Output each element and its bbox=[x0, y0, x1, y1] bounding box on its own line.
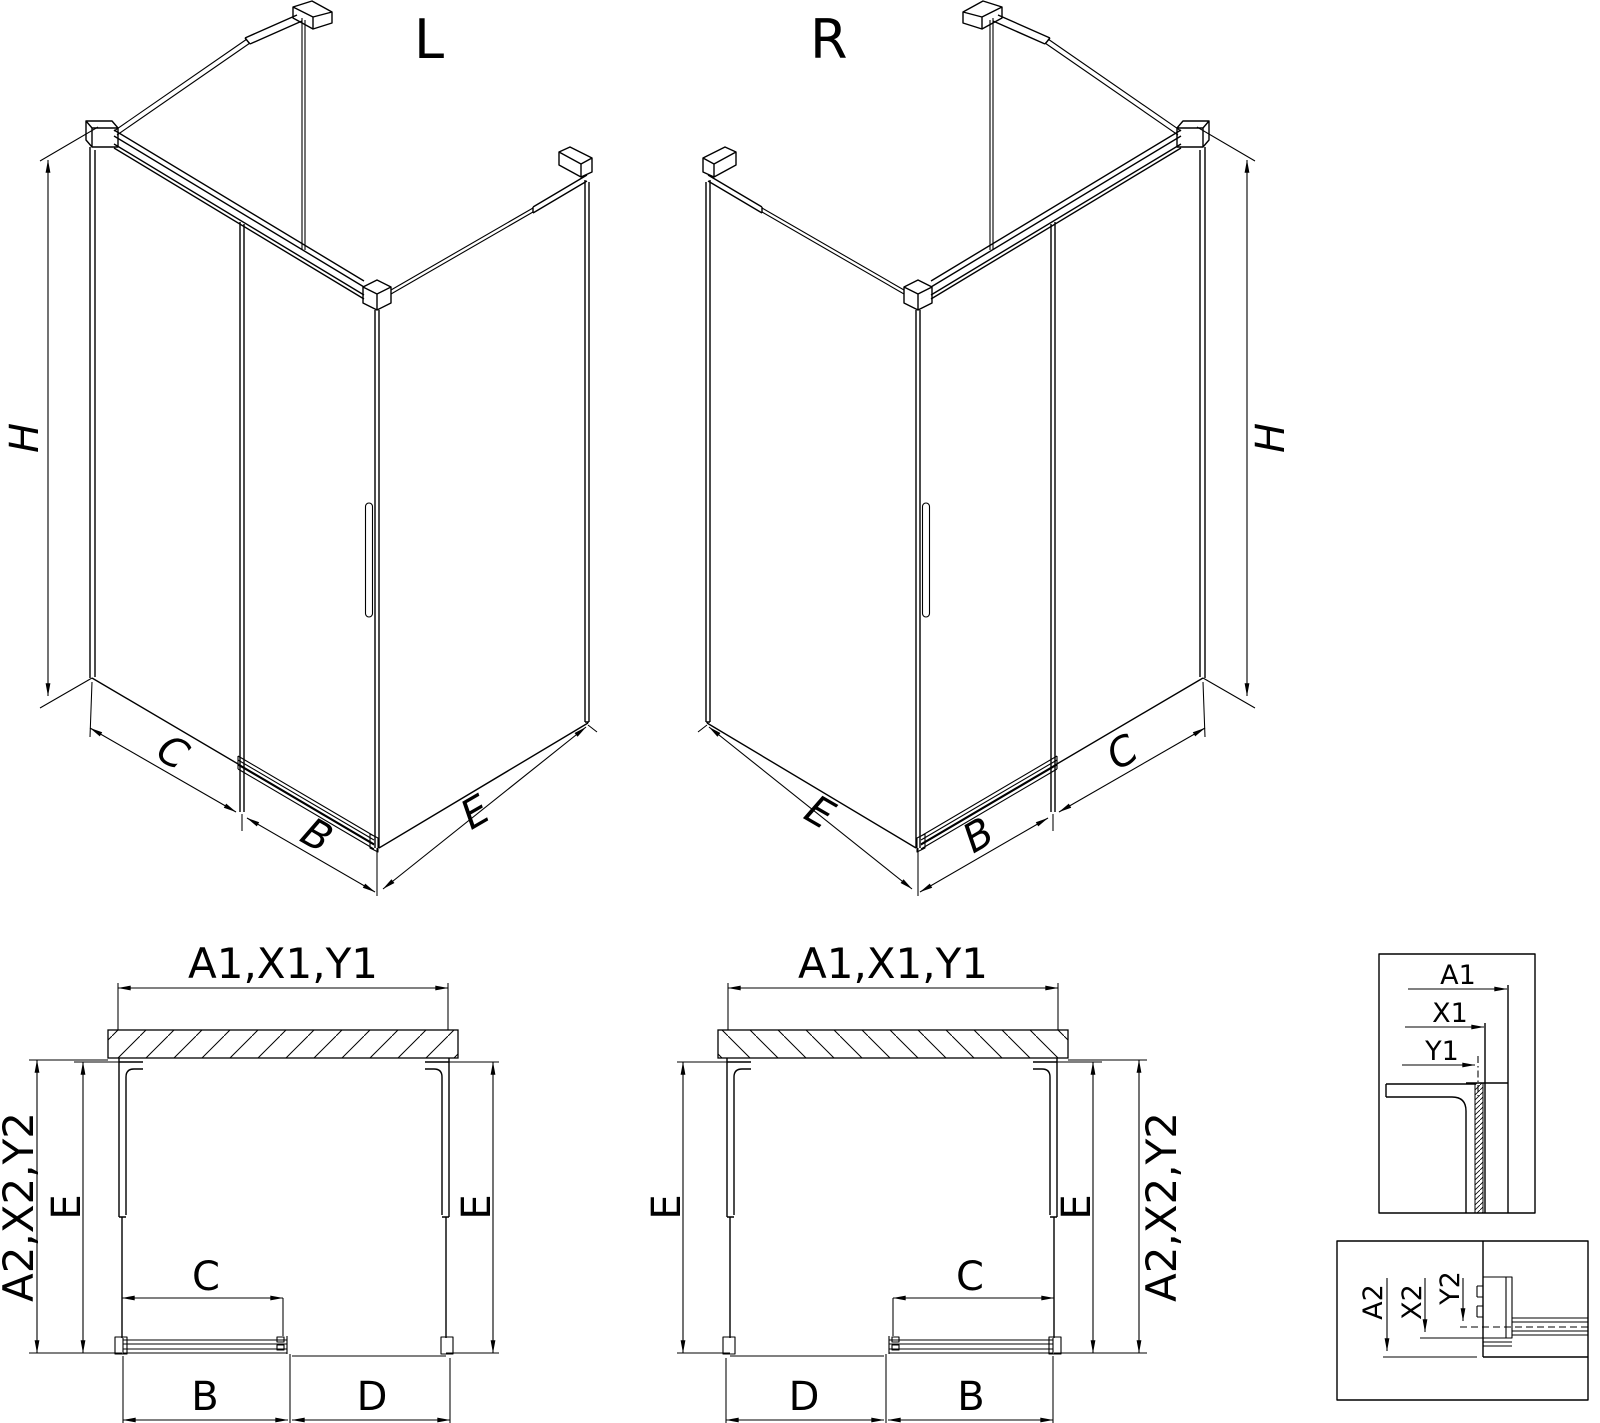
plan-right-dim-B: B bbox=[957, 1374, 984, 1420]
dim-label-C-left: C bbox=[149, 726, 196, 780]
technical-drawing-page: L H C B E R H C B E A1,X1,Y1 A2,X2,Y2 E … bbox=[0, 0, 1600, 1423]
plan-right-dim-depth-outer: A2,X2,Y2 bbox=[1137, 1112, 1186, 1302]
detail1-label-A1: A1 bbox=[1440, 960, 1476, 991]
view-title-right: R bbox=[810, 8, 848, 71]
drawing-canvas: L H C B E R H C B E A1,X1,Y1 A2,X2,Y2 E … bbox=[0, 0, 1600, 1423]
plan-right-dim-E-right: E bbox=[1054, 1194, 1100, 1219]
plan-right-dim-C: C bbox=[956, 1254, 984, 1300]
plan-view-left: A1,X1,Y1 A2,X2,Y2 E E C B D bbox=[0, 939, 500, 1423]
dim-label-E-left: E bbox=[453, 786, 499, 839]
detail1-label-Y1: Y1 bbox=[1424, 1036, 1459, 1067]
plan-left-dim-depth-outer: A2,X2,Y2 bbox=[0, 1112, 43, 1302]
detail2-profile-lines bbox=[1477, 1277, 1588, 1346]
plan-view-right: A1,X1,Y1 A2,X2,Y2 E E C B D bbox=[644, 939, 1186, 1423]
detail-floor-profile: A2 X2 Y2 bbox=[1337, 1241, 1588, 1400]
plan-left-dim-B: B bbox=[191, 1374, 218, 1420]
plan-left-dim-D: D bbox=[357, 1374, 388, 1420]
detail1-glass-section bbox=[1475, 1083, 1483, 1213]
detail2-extension-lines bbox=[1383, 1338, 1483, 1357]
dim-label-H-right: H bbox=[1248, 423, 1294, 453]
plan-right-dim-width: A1,X1,Y1 bbox=[798, 939, 988, 988]
dim-label-B-left: B bbox=[293, 809, 340, 863]
plan-left-dim-E-right: E bbox=[454, 1194, 500, 1219]
detail2-wall-floor-lines bbox=[1483, 1241, 1588, 1357]
detail-wall-profile: A1 X1 Y1 bbox=[1379, 954, 1535, 1213]
plan-left-dim-E-left: E bbox=[44, 1194, 90, 1219]
dim-label-E-right: E bbox=[797, 787, 843, 840]
detail2-label-A2: A2 bbox=[1358, 1284, 1389, 1320]
detail2-label-X2: X2 bbox=[1397, 1284, 1428, 1320]
dim-label-C-right: C bbox=[1099, 726, 1146, 780]
plan-right-dim-D: D bbox=[789, 1374, 820, 1420]
view-title-left: L bbox=[414, 8, 444, 71]
plan-left-dim-width: A1,X1,Y1 bbox=[188, 939, 378, 988]
dim-label-B-right: B bbox=[955, 809, 1002, 863]
plan-left-dim-C: C bbox=[192, 1254, 220, 1300]
iso-view-right: R H C B E bbox=[698, 1, 1294, 896]
dim-label-H-left: H bbox=[2, 423, 48, 453]
iso-view-left: L H C B E bbox=[2, 1, 597, 896]
detail2-label-Y2: Y2 bbox=[1435, 1271, 1466, 1306]
detail1-label-X1: X1 bbox=[1432, 998, 1468, 1029]
plan-right-dim-E-left: E bbox=[644, 1194, 690, 1219]
